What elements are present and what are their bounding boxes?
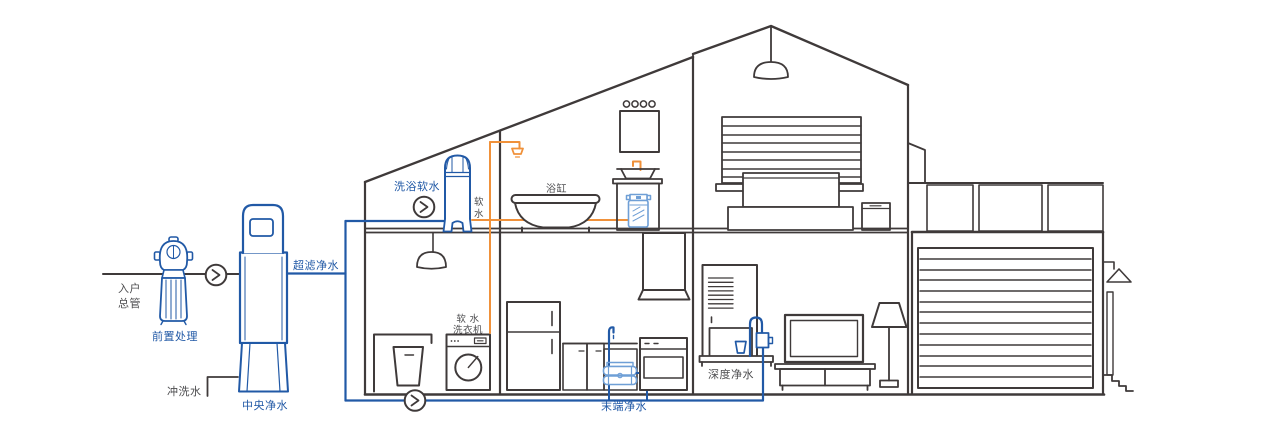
label-ultrafiltration: 超滤净水	[293, 258, 339, 272]
house-water-system-diagram: 入户 总管 前置处理 冲洗水 中央净水 超滤净水 洗浴软水 软 水 浴缸 软 水…	[0, 0, 1280, 434]
mirror-lights	[623, 101, 655, 107]
floor-lamp	[872, 303, 907, 387]
tv-stand	[775, 364, 875, 390]
mirror	[620, 111, 659, 152]
bathtub-bowl	[515, 203, 596, 228]
balcony-railing	[927, 185, 1103, 231]
label-central-purifier: 中央净水	[242, 398, 288, 412]
nightstand	[862, 203, 890, 230]
downspout	[1107, 292, 1113, 375]
label-deep-purifier: 深度净水	[708, 367, 754, 381]
shower-head	[490, 142, 523, 157]
range-hood	[639, 233, 690, 300]
balcony-back-roof-edge	[908, 143, 925, 183]
water-softener-device	[444, 156, 472, 232]
laundry-tub	[394, 347, 424, 386]
bathroom	[490, 101, 662, 232]
tv	[785, 315, 863, 362]
pendant-lamp-laundry	[417, 252, 446, 269]
bathtub-rim	[512, 195, 600, 203]
label-soft-washer-line1: 软 水	[456, 313, 479, 325]
label-pre-treatment: 前置处理	[152, 329, 198, 343]
flow-indicator-bottom	[405, 390, 426, 411]
garage-and-balcony	[908, 143, 1133, 393]
fridge	[507, 302, 560, 390]
bathtub	[512, 195, 600, 232]
central-purifier-device	[239, 205, 288, 392]
label-soft-water-char2: 水	[474, 208, 484, 220]
bed-base	[728, 207, 853, 230]
label-bathtub: 浴缸	[546, 182, 567, 195]
laundry-room	[374, 233, 490, 392]
label-flush-water: 冲洗水	[167, 384, 202, 398]
undersink-filter-bathroom	[627, 195, 651, 228]
flush-drain-pipe	[208, 377, 239, 396]
label-entry-main-line1: 入户	[118, 281, 141, 295]
stove-oven	[640, 338, 687, 390]
label-soft-water-char1: 软	[474, 196, 484, 208]
kitchen-faucet	[609, 327, 614, 343]
gable-roof-line	[693, 26, 908, 85]
pre-filter-device	[155, 237, 193, 325]
stairs	[1104, 375, 1133, 391]
water-dispenser	[703, 265, 758, 360]
wall-lamp	[1103, 262, 1131, 282]
bedroom	[716, 27, 890, 230]
garage-door	[918, 248, 1093, 388]
kitchen	[507, 233, 690, 400]
flow-indicator-inlet	[206, 265, 227, 286]
label-bath-softener: 洗浴软水	[394, 179, 440, 193]
washing-machine	[447, 335, 491, 391]
flow-indicator-softener	[414, 197, 435, 218]
label-soft-washer-line2: 洗衣机	[453, 324, 483, 336]
diagram-canvas: 入户 总管 前置处理 冲洗水 中央净水 超滤净水 洗浴软水 软 水 浴缸 软 水…	[0, 0, 1280, 434]
pendant-lamp-bedroom	[754, 62, 788, 79]
label-terminal-purifier: 末端净水	[601, 399, 647, 413]
shed-roof-line	[365, 57, 693, 182]
bed	[728, 173, 853, 230]
label-entry-main-line2: 总管	[118, 296, 141, 310]
